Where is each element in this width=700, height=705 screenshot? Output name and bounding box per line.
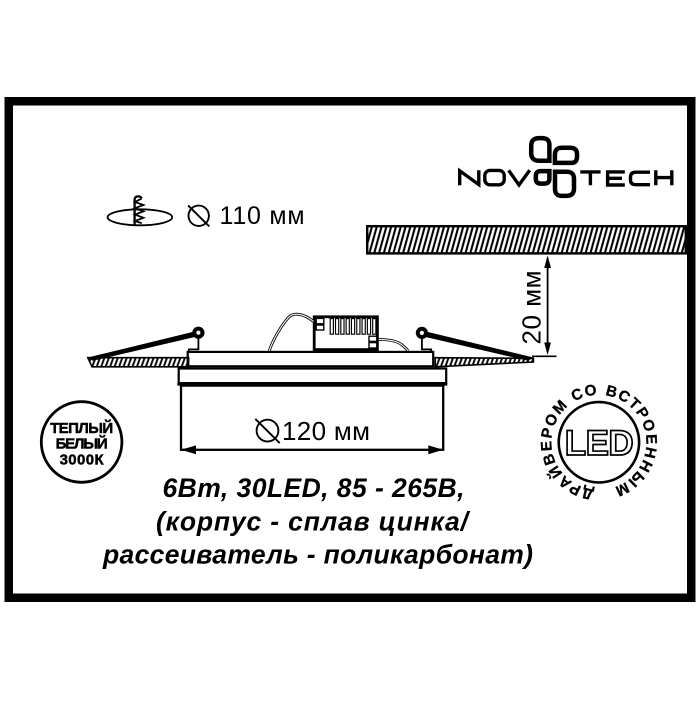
svg-text:110 мм: 110 мм: [220, 202, 305, 230]
svg-text:6Вт, 30LED, 85 - 265В,: 6Вт, 30LED, 85 - 265В,: [163, 473, 465, 503]
svg-text:рассеиватель - поликарбонат): рассеиватель - поликарбонат): [102, 540, 533, 570]
svg-text:3000К: 3000К: [60, 452, 105, 469]
svg-text:LED: LED: [565, 424, 634, 463]
svg-text:(корпус - сплав цинка/: (корпус - сплав цинка/: [156, 507, 471, 537]
svg-text:120 мм: 120 мм: [282, 416, 370, 446]
svg-text:БЕЛЫЙ: БЕЛЫЙ: [56, 434, 108, 452]
svg-text:20 мм: 20 мм: [517, 271, 547, 345]
